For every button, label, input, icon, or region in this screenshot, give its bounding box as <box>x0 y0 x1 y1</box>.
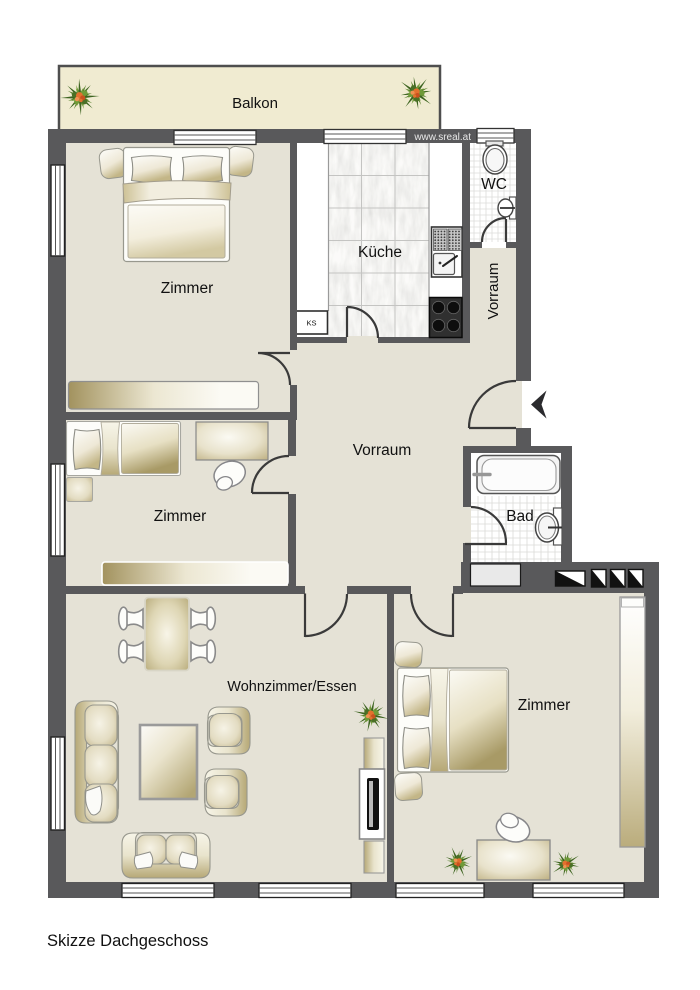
svg-text:Wohnzimmer/Essen: Wohnzimmer/Essen <box>227 679 356 695</box>
svg-text:Bad: Bad <box>506 508 534 525</box>
svg-text:Zimmer: Zimmer <box>154 508 207 525</box>
svg-text:Balkon: Balkon <box>232 95 278 112</box>
svg-text:www.sreal.at: www.sreal.at <box>413 132 471 143</box>
svg-text:Zimmer: Zimmer <box>518 697 571 714</box>
svg-text:Vorraum: Vorraum <box>485 263 502 320</box>
svg-text:Küche: Küche <box>358 244 402 261</box>
svg-text:KS: KS <box>306 319 316 328</box>
svg-text:WC: WC <box>481 176 507 193</box>
svg-text:Skizze Dachgeschoss: Skizze Dachgeschoss <box>47 932 208 950</box>
svg-text:Zimmer: Zimmer <box>161 280 214 297</box>
svg-text:Vorraum: Vorraum <box>353 442 412 459</box>
